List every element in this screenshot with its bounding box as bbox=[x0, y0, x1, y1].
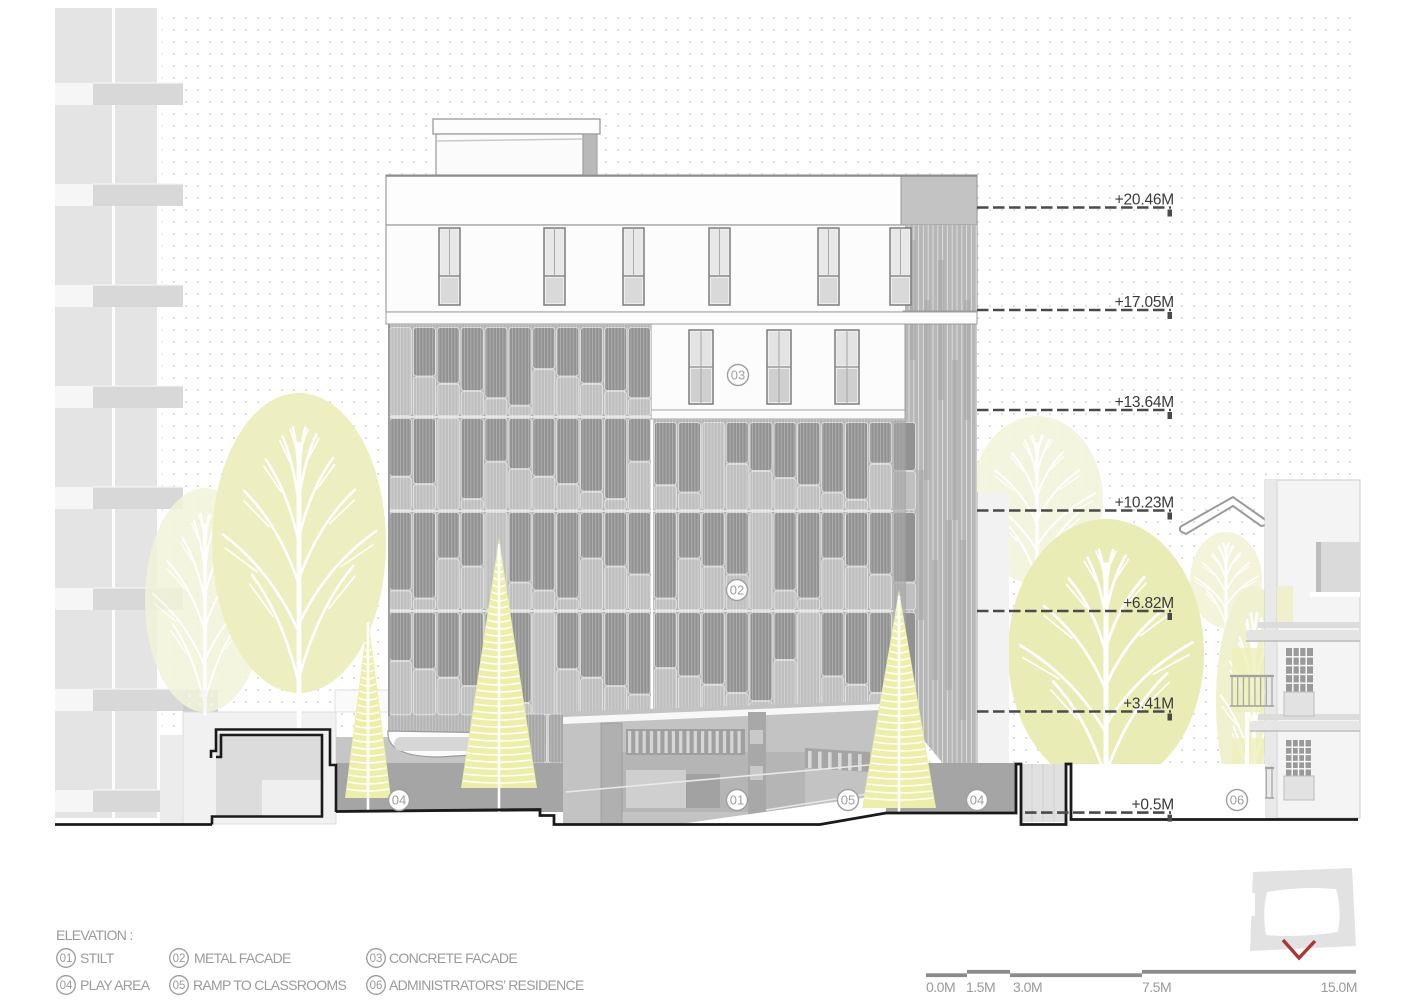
svg-text:15.0M: 15.0M bbox=[1321, 979, 1357, 995]
svg-text:+0.5M: +0.5M bbox=[1131, 797, 1174, 814]
svg-text:ELEVATION :: ELEVATION : bbox=[56, 927, 133, 943]
svg-text:ADMINISTRATORS’ RESIDENCE: ADMINISTRATORS’ RESIDENCE bbox=[389, 977, 584, 993]
svg-text:RAMP TO CLASSROOMS: RAMP TO CLASSROOMS bbox=[193, 977, 346, 993]
svg-text:06: 06 bbox=[1230, 793, 1244, 808]
svg-text:03: 03 bbox=[370, 953, 383, 965]
svg-text:METAL FACADE: METAL FACADE bbox=[194, 950, 291, 966]
svg-text:03: 03 bbox=[731, 368, 745, 383]
svg-text:+13.64M: +13.64M bbox=[1115, 394, 1174, 411]
svg-text:PLAY AREA: PLAY AREA bbox=[80, 977, 151, 993]
svg-text:02: 02 bbox=[730, 583, 744, 598]
svg-text:05: 05 bbox=[841, 793, 855, 808]
svg-text:STILT: STILT bbox=[80, 950, 115, 966]
svg-text:3.0M: 3.0M bbox=[1013, 979, 1042, 995]
svg-text:1.5M: 1.5M bbox=[966, 979, 995, 995]
svg-text:02: 02 bbox=[173, 953, 186, 965]
svg-text:04: 04 bbox=[970, 793, 984, 808]
svg-text:0.0M: 0.0M bbox=[926, 979, 955, 995]
svg-text:+10.23M: +10.23M bbox=[1115, 495, 1174, 512]
svg-text:CONCRETE FACADE: CONCRETE FACADE bbox=[389, 950, 517, 966]
svg-text:01: 01 bbox=[730, 793, 744, 808]
svg-text:+20.46M: +20.46M bbox=[1115, 192, 1174, 209]
svg-text:+6.82M: +6.82M bbox=[1123, 595, 1174, 612]
svg-text:01: 01 bbox=[60, 953, 73, 965]
svg-text:+17.05M: +17.05M bbox=[1115, 294, 1174, 311]
svg-text:04: 04 bbox=[392, 793, 406, 808]
svg-text:04: 04 bbox=[60, 980, 73, 992]
svg-text:05: 05 bbox=[173, 980, 186, 992]
svg-text:06: 06 bbox=[370, 980, 383, 992]
svg-text:7.5M: 7.5M bbox=[1142, 979, 1171, 995]
svg-text:+3.41M: +3.41M bbox=[1123, 696, 1174, 713]
